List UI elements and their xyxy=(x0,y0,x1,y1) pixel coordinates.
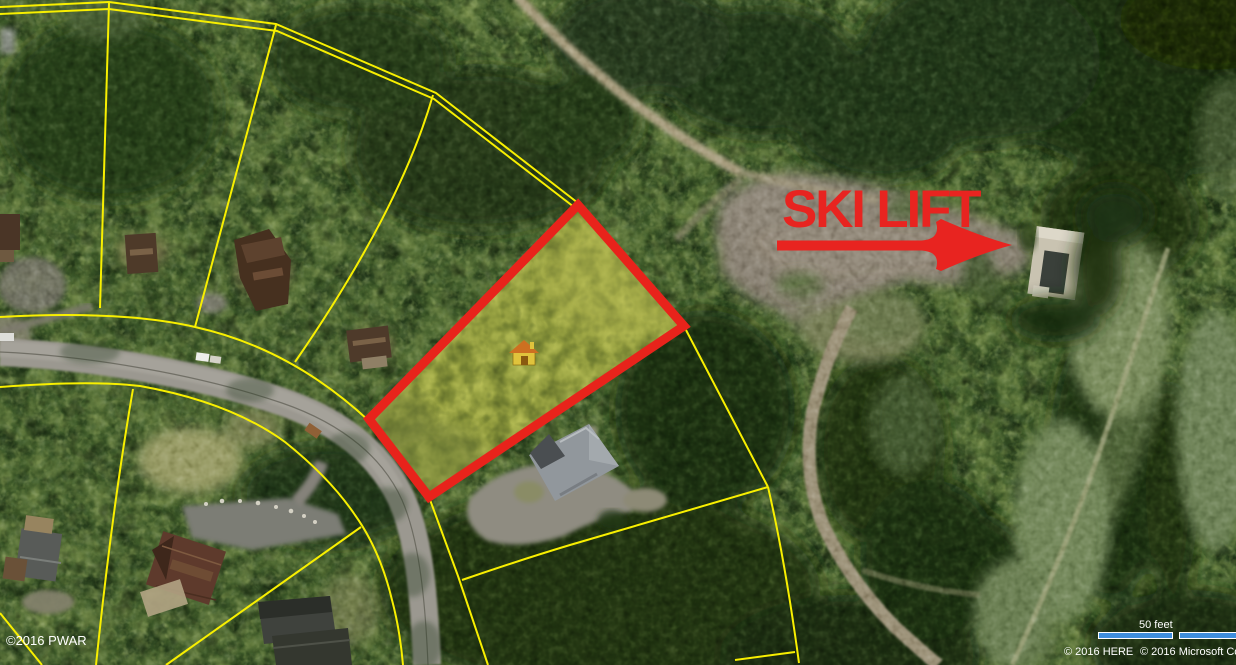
svg-text:© 2016 Microsoft Cor: © 2016 Microsoft Cor xyxy=(1140,646,1236,658)
svg-text:50 feet: 50 feet xyxy=(1139,619,1173,631)
svg-text:©2016 PWAR: ©2016 PWAR xyxy=(6,633,87,648)
svg-text:© 2016 HERE: © 2016 HERE xyxy=(1064,646,1133,658)
